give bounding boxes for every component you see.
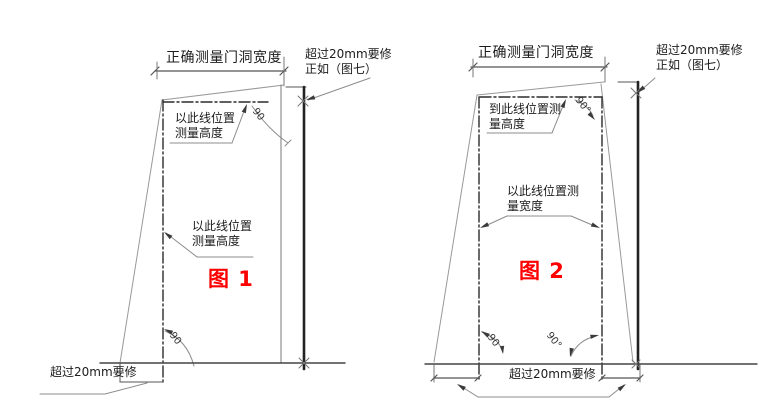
fig2-overflow-note-line1: 超过20mm要修 [656, 43, 743, 57]
fig1-overflow-note: 超过20mm要修正如（图七） [305, 47, 392, 77]
fig1-height-note-top: 以此线位置测量高度 [175, 111, 235, 141]
fig2-width-note-line1: 以此线位置测 [507, 184, 579, 198]
fig2-height-note: 到此线位置测量高度 [489, 102, 561, 132]
fig1-overflow-note-line2: 正如（图七） [305, 62, 377, 76]
fig1-height-note-middle: 以此线位置测量高度 [192, 219, 252, 249]
fig2-overflow-note-line2: 正如（图七） [656, 58, 728, 72]
measurement-diagram: 正确测量门洞宽度 超过20mm要修正如（图七） 以此线位置测量高度 以此线位置测… [0, 0, 763, 414]
fig2-height-note-line1: 到此线位置测 [489, 102, 561, 116]
fig1-overflow-note-line1: 超过20mm要修 [305, 47, 392, 61]
fig1-height-note-top-line1: 以此线位置 [175, 111, 235, 125]
fig2-width-dimension-label: 正确测量门洞宽度 [478, 46, 594, 61]
fig1-height-note-middle-line2: 测量高度 [192, 234, 240, 248]
fig1-sill-note: 超过20mm要修 [50, 365, 137, 380]
fig1-height-note-top-line2: 测量高度 [175, 126, 223, 140]
fig2-height-note-line2: 量高度 [489, 117, 525, 131]
fig1-width-dimension-label: 正确测量门洞宽度 [166, 51, 282, 66]
fig2-width-note-line2: 量宽度 [507, 199, 543, 213]
fig1-caption: 图 1 [208, 272, 254, 287]
fig2-caption: 图 2 [519, 264, 565, 279]
fig2-sill-note: 超过20mm要修 [509, 367, 596, 382]
fig2-width-note: 以此线位置测量宽度 [507, 184, 579, 214]
fig2-overflow-note: 超过20mm要修正如（图七） [656, 43, 743, 73]
fig1-height-note-middle-line1: 以此线位置 [192, 219, 252, 233]
